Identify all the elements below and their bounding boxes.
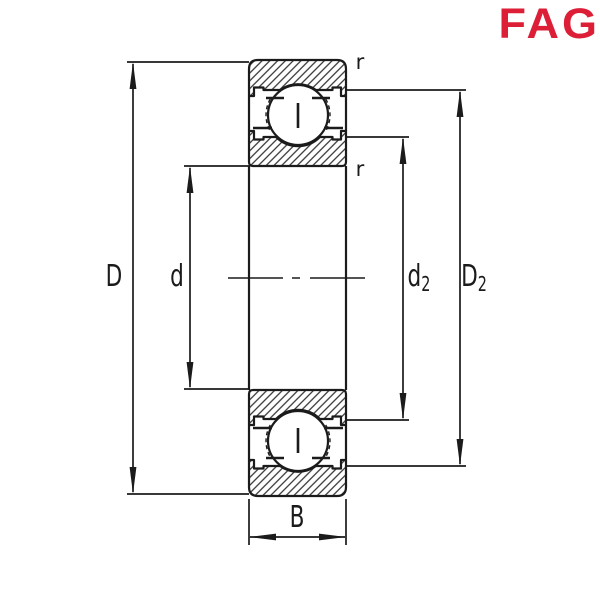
dim-label-width-B: B bbox=[286, 503, 308, 533]
dim-label-B-text: B bbox=[290, 503, 305, 533]
dim-label-radius-outer: r bbox=[350, 52, 370, 73]
dim-label-bore-diameter-d: d bbox=[166, 262, 188, 292]
dim-label-outer-diameter-D: D bbox=[103, 262, 125, 292]
dim-label-inner-shoulder-d2: d2 bbox=[408, 262, 430, 292]
bearing-drawing-page: D d d2 D2 B r r FAG bbox=[0, 0, 600, 600]
dim-label-d2-base: d bbox=[408, 262, 422, 292]
fag-logo: FAG bbox=[464, 0, 600, 48]
dim-label-D2-subscript: 2 bbox=[478, 274, 487, 294]
dim-label-D2-base: D bbox=[461, 262, 478, 292]
dim-label-radius-inner: r bbox=[350, 159, 370, 180]
dim-label-D-text: D bbox=[106, 262, 123, 292]
dim-label-outer-shoulder-D2: D2 bbox=[463, 262, 485, 292]
dim-label-d2-subscript: 2 bbox=[421, 274, 430, 294]
dim-label-d-text: d bbox=[170, 262, 184, 292]
